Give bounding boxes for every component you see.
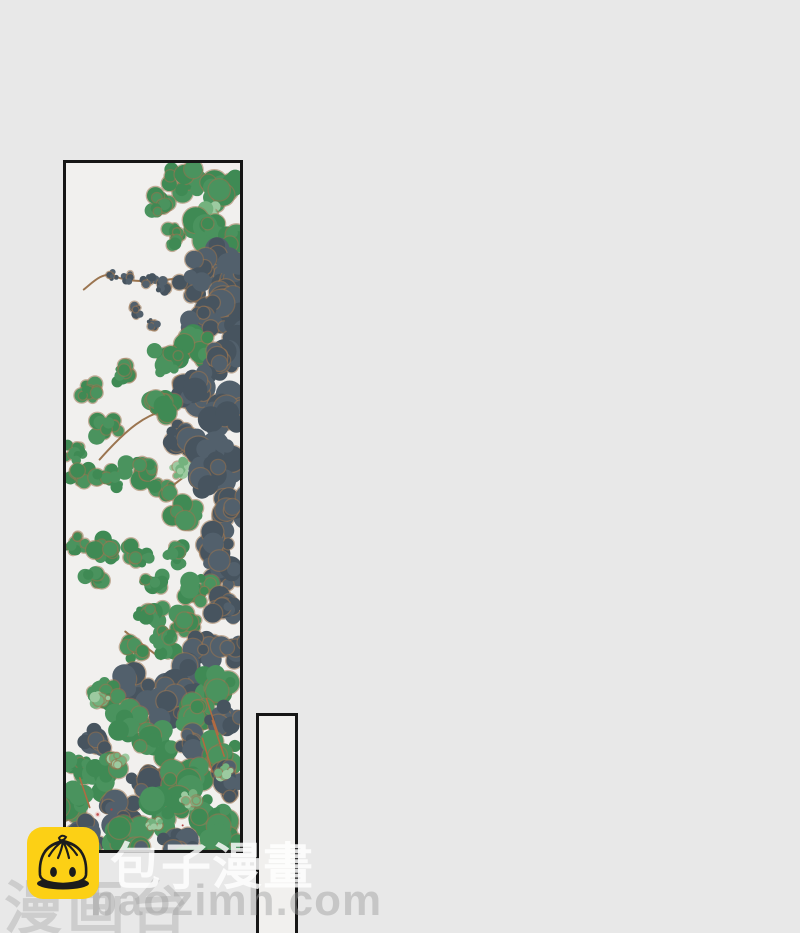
comic-panel-small (256, 713, 298, 933)
watermark-site-url: baozimh.com (90, 876, 382, 926)
baozi-logo (27, 827, 99, 899)
comic-page: 漫画台 baozimh.com 包子漫畫 (0, 0, 800, 933)
baozi-bun-icon (27, 827, 99, 899)
tree-foliage-art (66, 163, 240, 850)
comic-panel-tall (63, 160, 243, 853)
